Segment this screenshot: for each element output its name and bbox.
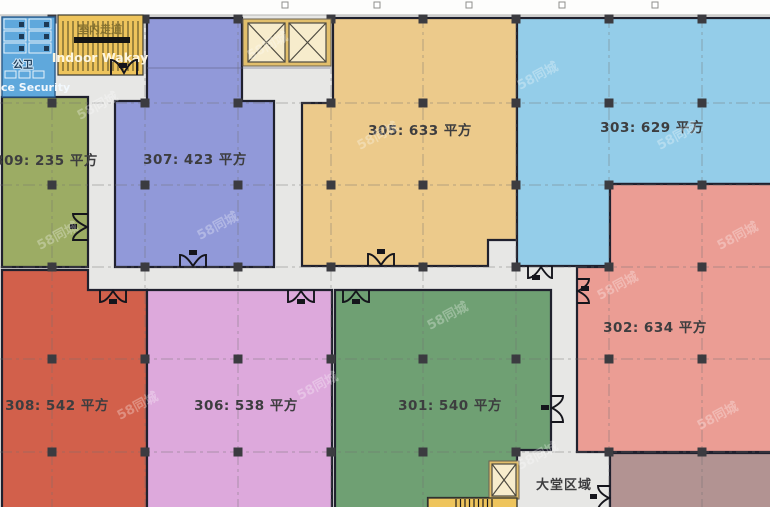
grid-column-marker <box>141 448 150 457</box>
toilet-icon <box>19 22 24 27</box>
grid-column-marker <box>48 448 57 457</box>
elevator-lobby-south <box>489 461 519 499</box>
restroom-label-cn: 公卫 <box>13 59 33 71</box>
grid-column-marker <box>419 99 428 108</box>
grid-column-marker <box>234 263 243 272</box>
grid-column-marker <box>419 448 428 457</box>
grid-column-marker <box>141 181 150 190</box>
floor-plan-image[interactable]: 公卫 ce Security 室内走道 Indoor Wakay <box>0 0 770 507</box>
grid-column-marker <box>419 181 428 190</box>
grid-column-marker <box>234 448 243 457</box>
elevator-icon <box>492 464 516 496</box>
grid-column-marker <box>605 181 614 190</box>
floor-plan-svg: 公卫 ce Security 室内走道 Indoor Wakay <box>0 0 770 507</box>
grid-column-marker <box>327 263 336 272</box>
stairs-south-block <box>428 498 517 507</box>
room-307-label: 307: 423 平方 <box>143 151 247 168</box>
grid-column-marker <box>419 15 428 24</box>
grid-column-marker <box>512 448 521 457</box>
grid-column-marker <box>698 181 707 190</box>
grid-column-marker <box>327 355 336 364</box>
grid-column-marker <box>512 263 521 272</box>
walkway-label-cn: 室内走道 <box>78 22 122 36</box>
grid-column-marker <box>419 355 428 364</box>
grid-column-marker <box>234 355 243 364</box>
grid-column-marker <box>512 99 521 108</box>
grid-column-marker <box>234 15 243 24</box>
stairs-landing-bar <box>74 37 130 43</box>
grid-column-marker <box>512 181 521 190</box>
grid-column-marker <box>48 181 57 190</box>
grid-column-marker <box>48 263 57 272</box>
room-308-area <box>2 270 147 507</box>
grid-column-marker <box>698 448 707 457</box>
toilet-icon <box>44 46 49 51</box>
room-308-label: 308: 542 平方 <box>5 397 109 414</box>
restroom-label-en: ce Security <box>1 81 70 94</box>
grid-column-marker <box>141 263 150 272</box>
grid-column-marker <box>327 99 336 108</box>
grid-column-marker <box>48 99 57 108</box>
room-unlabeled-area <box>610 453 770 507</box>
grid-column-marker <box>605 448 614 457</box>
grid-column-marker <box>605 15 614 24</box>
grid-column-marker <box>698 355 707 364</box>
stairs-area <box>428 498 517 507</box>
grid-column-marker <box>698 15 707 24</box>
toilet-icon <box>44 22 49 27</box>
lobby-label: 大堂区域 <box>536 477 592 493</box>
grid-column-marker <box>419 263 428 272</box>
room-305-area <box>302 18 517 266</box>
room-306-label: 306: 538 平方 <box>194 397 298 414</box>
room-309-label: 309: 235 平方 <box>0 152 98 169</box>
toilet-icon <box>19 46 24 51</box>
toilet-icon <box>19 34 24 39</box>
grid-column-marker <box>234 181 243 190</box>
grid-column-marker <box>698 99 707 108</box>
grid-column-marker <box>234 99 243 108</box>
room-302-label: 302: 634 平方 <box>603 319 707 336</box>
grid-column-marker <box>605 355 614 364</box>
grid-column-marker <box>512 355 521 364</box>
grid-column-marker <box>141 355 150 364</box>
grid-column-marker <box>605 263 614 272</box>
grid-column-marker <box>141 99 150 108</box>
grid-column-marker <box>698 263 707 272</box>
grid-column-marker <box>605 99 614 108</box>
grid-column-marker <box>327 181 336 190</box>
toilet-icon <box>44 34 49 39</box>
grid-column-marker <box>48 355 57 364</box>
grid-column-marker <box>327 448 336 457</box>
walkway-label-en: Indoor Wakay <box>52 50 148 65</box>
room-301-label: 301: 540 平方 <box>398 397 502 414</box>
grid-column-marker <box>512 15 521 24</box>
walkway-block: 室内走道 Indoor Wakay <box>52 15 148 75</box>
